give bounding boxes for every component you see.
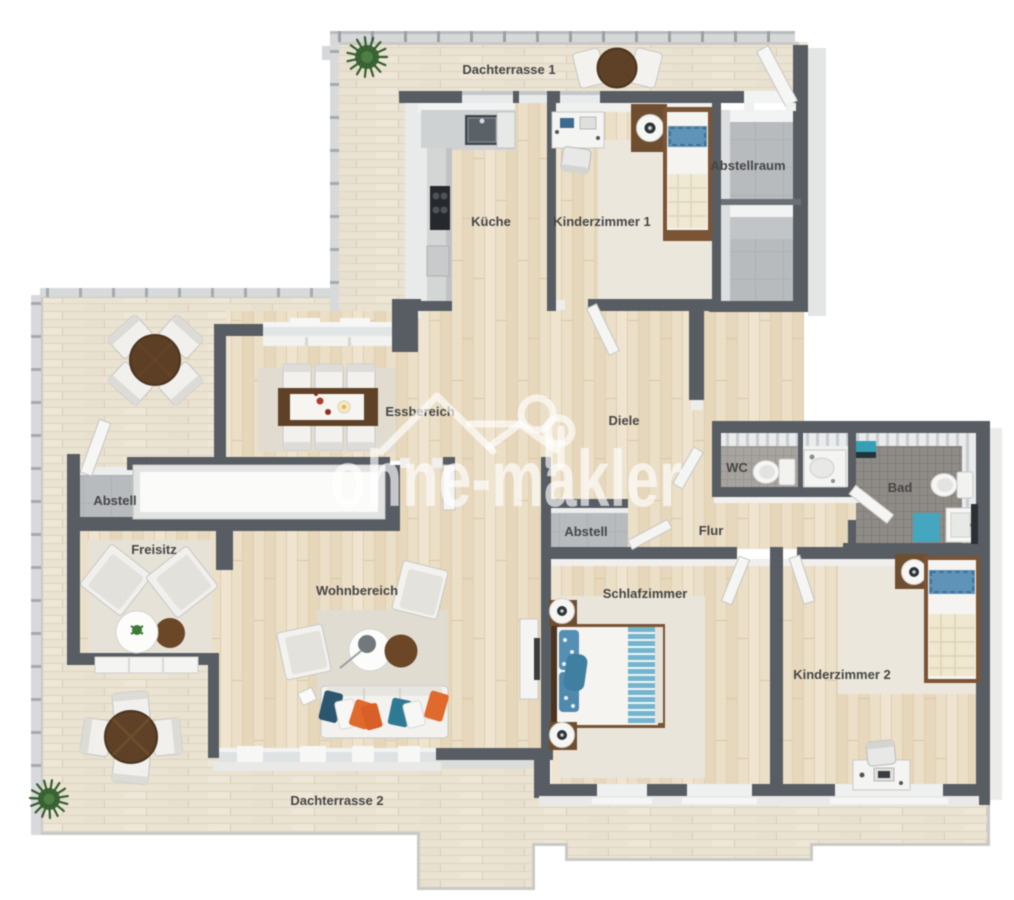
- svg-text:Flur: Flur: [699, 523, 724, 538]
- svg-text:Küche: Küche: [471, 214, 511, 229]
- svg-text:Bad: Bad: [888, 480, 913, 495]
- svg-text:Freisitz: Freisitz: [131, 542, 177, 557]
- svg-text:Dachterrasse 2: Dachterrasse 2: [290, 793, 383, 808]
- svg-text:Kinderzimmer 1: Kinderzimmer 1: [553, 214, 651, 229]
- svg-text:ohne-makler: ohne-makler: [330, 434, 682, 523]
- svg-text:Schlafzimmer: Schlafzimmer: [603, 586, 688, 601]
- svg-text:Kinderzimmer 2: Kinderzimmer 2: [793, 667, 891, 682]
- svg-text:Diele: Diele: [608, 413, 639, 428]
- svg-text:Abstell: Abstell: [93, 493, 136, 508]
- svg-text:Wohnbereich: Wohnbereich: [316, 583, 398, 598]
- svg-text:Abstell: Abstell: [564, 524, 607, 539]
- svg-text:Dachterrasse 1: Dachterrasse 1: [462, 62, 555, 77]
- svg-text:Abstellraum: Abstellraum: [710, 158, 785, 173]
- svg-text:WC: WC: [726, 460, 748, 475]
